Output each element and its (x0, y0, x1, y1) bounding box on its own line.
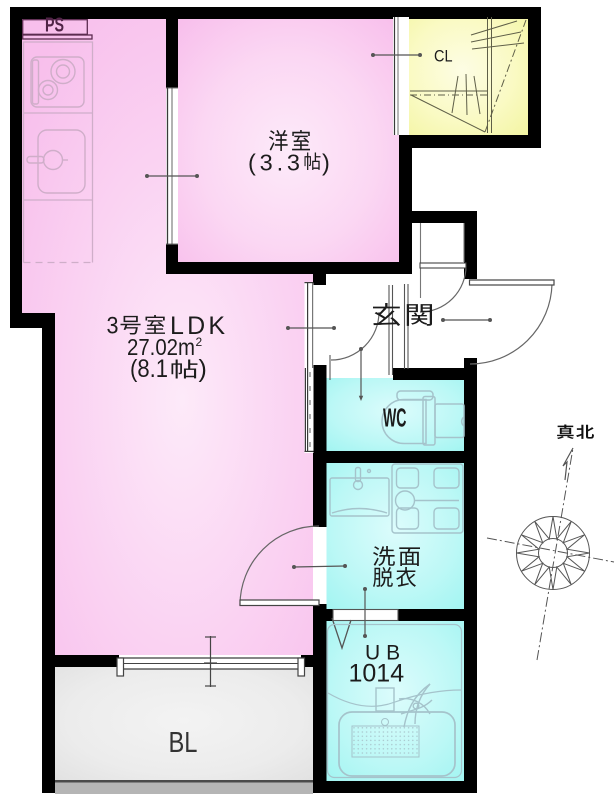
svg-text:): ) (199, 355, 207, 383)
svg-text:3: 3 (107, 313, 119, 340)
svg-text:BL: BL (169, 727, 198, 759)
svg-text:WC: WC (383, 403, 407, 433)
svg-text:1014: 1014 (349, 660, 405, 688)
svg-text:CL: CL (434, 47, 453, 66)
svg-text:(8.1: (8.1 (130, 355, 168, 383)
svg-text:2: 2 (196, 335, 203, 349)
svg-text:): ) (322, 150, 330, 176)
svg-text:PS: PS (45, 15, 64, 37)
